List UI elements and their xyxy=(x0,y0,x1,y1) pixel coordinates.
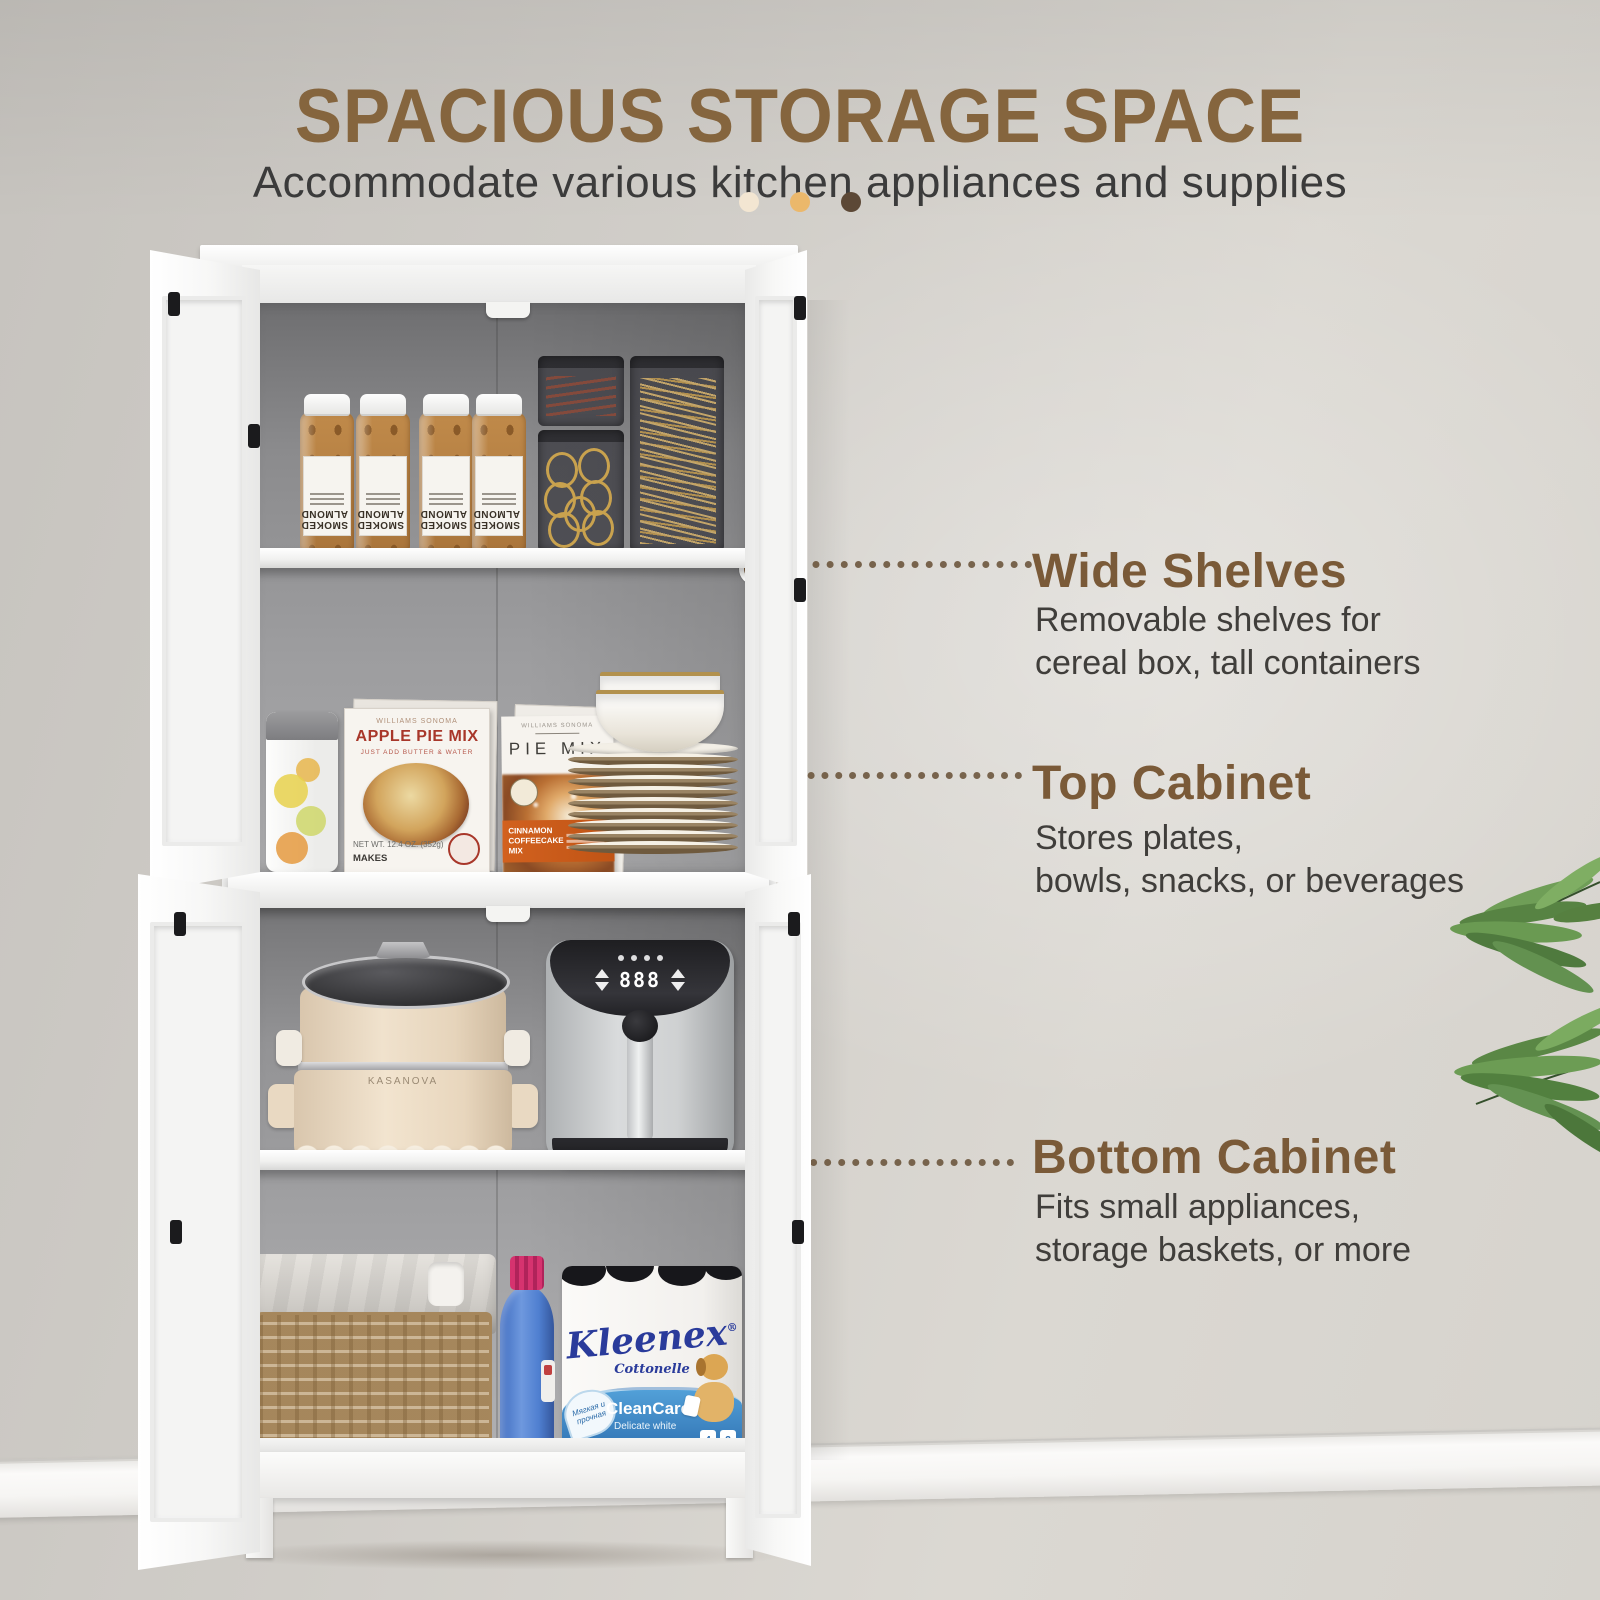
decor-dots xyxy=(0,192,1600,212)
detergent-label xyxy=(541,1360,555,1402)
cleancare-label: CleanCare xyxy=(606,1399,690,1419)
band-text: CINNAMON COFFEECAKE MIX xyxy=(508,826,566,857)
top-cabinet-leader-line xyxy=(780,772,1022,779)
door-hinge xyxy=(788,912,800,936)
air-fryer: 888 xyxy=(546,940,734,1164)
almond-jar: SMOKED ALMOND xyxy=(472,394,526,554)
cabinet-header-band xyxy=(222,265,776,303)
almond-jar-label: SMOKED ALMOND xyxy=(359,456,407,536)
almond-jar-label-text: SMOKED ALMOND xyxy=(425,508,467,530)
cabinet-floor-shadow xyxy=(214,1540,794,1570)
dried-food-container xyxy=(538,356,624,426)
door-hinge xyxy=(168,292,180,316)
rolled-towel xyxy=(428,1262,464,1306)
cabinet-base-rail xyxy=(228,1452,769,1498)
almond-jar-lid xyxy=(423,394,469,416)
pot-handle xyxy=(276,1030,302,1066)
callout-line: Fits small appliances, xyxy=(1035,1188,1360,1226)
wide-shelves-leader-line xyxy=(770,561,1032,568)
pasta-ring xyxy=(564,496,596,532)
door-panel xyxy=(150,922,246,1522)
registered-mark: ® xyxy=(726,1321,738,1335)
cabinet-top-board xyxy=(200,245,798,265)
middle-divider-board xyxy=(228,872,769,908)
pot-glass-lid xyxy=(302,955,510,1009)
callout-body-top-cabinet: Stores plates, bowls, snacks, or beverag… xyxy=(1035,817,1464,903)
callout-body-bottom-cabinet: Fits small appliances, storage baskets, … xyxy=(1035,1186,1411,1272)
bottom-cabinet-leader-line xyxy=(782,1159,1014,1166)
pot-brand: KASANOVA xyxy=(278,1076,528,1087)
door-hinge xyxy=(248,424,260,448)
canister-lid xyxy=(266,712,338,740)
decor-dot-brown xyxy=(841,192,861,212)
callout-body-wide-shelves: Removable shelves for cereal box, tall c… xyxy=(1035,599,1421,685)
box-seal xyxy=(510,778,538,806)
pasta-ring xyxy=(578,448,610,484)
decor-dot-cream xyxy=(739,192,759,212)
detergent-bottle xyxy=(500,1256,554,1454)
callout-line: Stores plates, xyxy=(1035,819,1243,857)
almond-jar-label-text: SMOKED ALMOND xyxy=(478,508,520,530)
back-panel-seam xyxy=(496,303,498,872)
cabinet-wall-shadow xyxy=(808,300,850,1460)
door-catch xyxy=(486,906,530,922)
callout-line: cereal box, tall containers xyxy=(1035,644,1421,682)
door-panel xyxy=(162,296,246,846)
delicate-white-label: Delicate white xyxy=(614,1421,676,1432)
callout-title-wide-shelves: Wide Shelves xyxy=(1032,544,1347,599)
box-tagline: JUST ADD BUTTER & WATER xyxy=(345,749,489,756)
box-brand: WILLIAMS SONOMA xyxy=(345,718,489,725)
pasta-rings-container xyxy=(538,430,624,552)
roll-core xyxy=(704,1266,742,1280)
label-fine-print xyxy=(482,493,516,508)
lower-shelf-board xyxy=(240,1150,757,1170)
almond-jar-label: SMOKED ALMOND xyxy=(475,456,523,536)
pie-photo xyxy=(363,763,469,845)
almond-jar: SMOKED ALMOND xyxy=(356,394,410,554)
almond-jar-lid xyxy=(476,394,522,416)
citrus-canister xyxy=(266,712,338,872)
roll-core xyxy=(562,1266,606,1286)
wicker-basket xyxy=(256,1254,492,1454)
fruit-graphic xyxy=(274,774,308,808)
upper-right-door xyxy=(745,250,807,892)
roll-core xyxy=(606,1266,654,1282)
box-makes: MAKES xyxy=(353,853,387,864)
basket-body xyxy=(256,1312,492,1454)
spaghetti-strands xyxy=(640,378,716,544)
product-infographic: SPACIOUS STORAGE SPACE Accommodate vario… xyxy=(0,0,1600,1600)
callout-title-top-cabinet: Top Cabinet xyxy=(1032,756,1311,811)
door-hinge xyxy=(792,1220,804,1244)
plate xyxy=(568,841,738,854)
almond-jar-label-text: SMOKED ALMOND xyxy=(362,508,404,530)
almond-jar-label-text: SMOKED ALMOND xyxy=(306,508,348,530)
almond-jar-lid xyxy=(360,394,406,416)
air-fryer-controls: 888 xyxy=(550,968,730,992)
decor-dot-amber xyxy=(790,192,810,212)
door-catch xyxy=(486,302,530,318)
steamer-pot: KASANOVA xyxy=(278,942,528,1160)
almond-jar-lid xyxy=(304,394,350,416)
detergent-cap xyxy=(510,1256,544,1290)
almond-jar: SMOKED ALMOND xyxy=(300,394,354,554)
band-line1: CINNAMON xyxy=(508,826,552,835)
almond-jar: SMOKED ALMOND xyxy=(419,394,473,554)
fruit-graphic xyxy=(296,806,326,836)
puppy-ear xyxy=(696,1358,706,1376)
almond-jar-label: SMOKED ALMOND xyxy=(422,456,470,536)
temp-arrows xyxy=(595,969,609,991)
box-seal xyxy=(448,833,480,865)
page-title: SPACIOUS STORAGE SPACE xyxy=(56,73,1544,160)
apple-pie-mix-box: WILLIAMS SONOMA APPLE PIE MIX JUST ADD B… xyxy=(344,708,490,874)
pot-handle xyxy=(504,1030,530,1066)
door-hinge xyxy=(794,296,806,320)
door-panel xyxy=(755,296,797,846)
box-rule xyxy=(535,733,579,734)
callout-title-bottom-cabinet: Bottom Cabinet xyxy=(1032,1130,1396,1185)
box-weight: NET WT. 12.4 OZ. (352g) xyxy=(353,840,444,849)
callout-line: storage baskets, or more xyxy=(1035,1231,1411,1269)
air-fryer-mode-icons xyxy=(550,955,730,961)
box-title: APPLE PIE MIX xyxy=(345,728,489,746)
door-hinge xyxy=(170,1220,182,1244)
door-hinge xyxy=(174,912,186,936)
air-fryer-display: 888 xyxy=(619,968,661,992)
time-arrows xyxy=(671,969,685,991)
callout-line: Removable shelves for xyxy=(1035,601,1381,639)
callout-line: bowls, snacks, or beverages xyxy=(1035,862,1464,900)
toilet-paper-pack: Kleenex® Cottonelle Мягкая и прочная Cle… xyxy=(562,1266,742,1456)
label-fine-print xyxy=(366,493,400,508)
dried-strands xyxy=(546,376,616,416)
spaghetti-container xyxy=(630,356,724,552)
upper-shelf-board xyxy=(240,548,757,568)
label-fine-print xyxy=(429,493,463,508)
label-fine-print xyxy=(310,493,344,508)
band-line2: COFFEECAKE MIX xyxy=(508,836,563,856)
upper-left-door xyxy=(150,250,260,892)
box-brand: WILLIAMS SONOMA xyxy=(501,722,613,729)
lower-left-door xyxy=(138,874,260,1570)
door-hinge xyxy=(794,578,806,602)
air-fryer-handle-knob xyxy=(622,1010,658,1042)
puppy-illustration xyxy=(688,1354,738,1422)
roll-core xyxy=(658,1266,706,1286)
pot-lid-knob xyxy=(375,942,431,958)
plate-stack xyxy=(568,744,738,870)
almond-jar-label: SMOKED ALMOND xyxy=(303,456,351,536)
fruit-graphic xyxy=(276,832,308,864)
